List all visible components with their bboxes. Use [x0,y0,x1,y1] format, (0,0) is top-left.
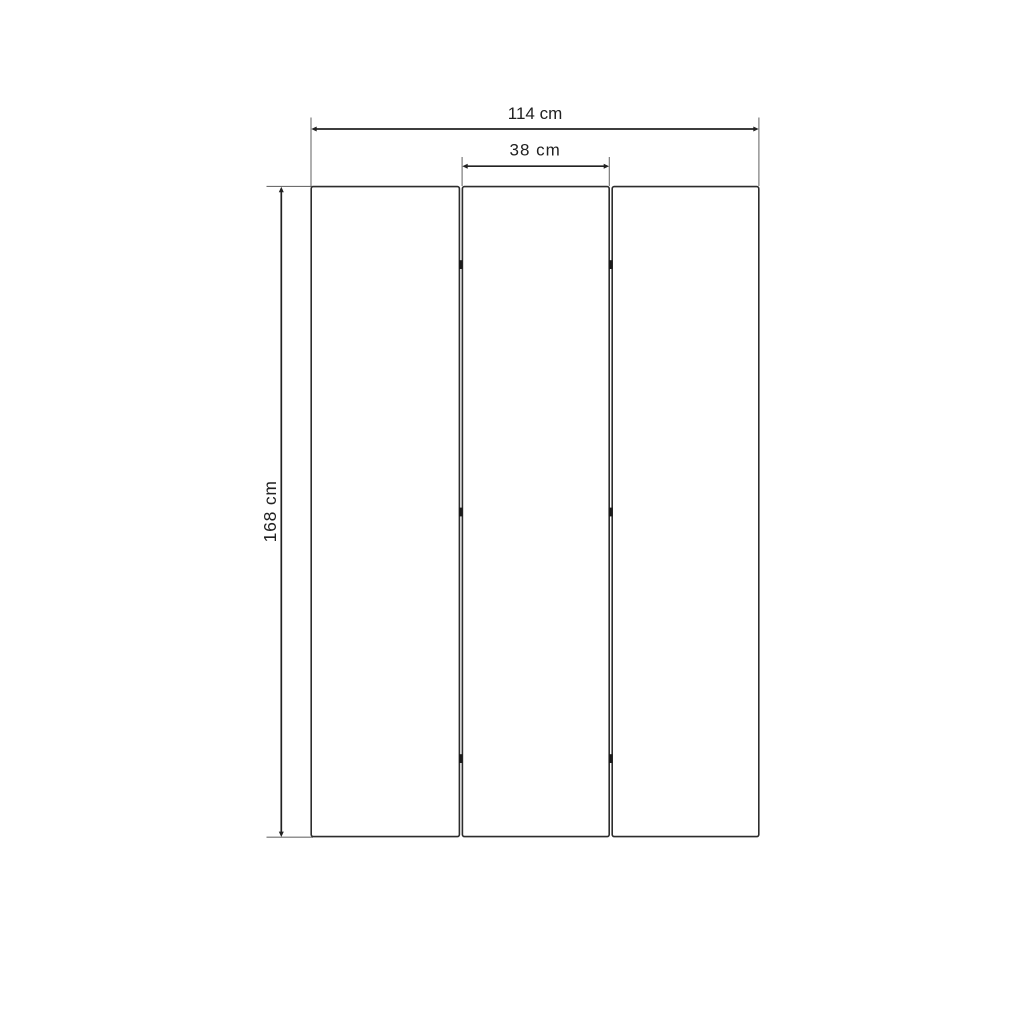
svg-text:114 cm: 114 cm [508,104,563,123]
svg-text:168 cm: 168 cm [260,480,280,542]
svg-text:38 cm: 38 cm [510,141,561,160]
